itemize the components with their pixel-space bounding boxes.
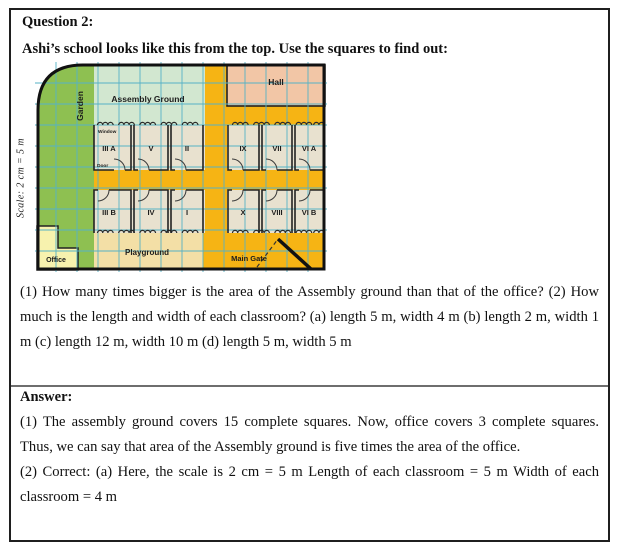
corridor-middle: [94, 170, 325, 190]
question-label: Question 2:: [22, 14, 93, 31]
question-body: (1) How many times bigger is the area of…: [20, 280, 599, 355]
classroom-label-VII: VII: [272, 144, 281, 153]
classroom-label-VIA: VI A: [302, 144, 317, 153]
classroom-label-IIIB: III B: [102, 208, 116, 217]
assembly-ground-label: Assembly Ground: [111, 94, 184, 104]
answer-label: Answer:: [20, 389, 72, 406]
office-label: Office: [46, 257, 66, 264]
classroom-label-IIIA: III A: [102, 144, 116, 153]
classroom-label-X: X: [240, 208, 245, 217]
answer-part1: (1) The assembly ground covers 15 comple…: [20, 410, 599, 460]
classroom-label-IX: IX: [239, 144, 246, 153]
classroom-label-II: II: [185, 144, 189, 153]
main-gate-label: Main Gate: [231, 254, 267, 263]
classroom-label-I: I: [186, 208, 188, 217]
document-page: Question 2: Ashi’s school looks like thi…: [0, 0, 619, 550]
hall-label: Hall: [268, 77, 284, 87]
window-annotation: Window: [98, 129, 117, 135]
door-annotation: Door: [97, 163, 108, 169]
answer-body: (1) The assembly ground covers 15 comple…: [20, 410, 599, 510]
scale-label: Scale: 2 cm = 5 m: [16, 138, 27, 218]
classroom-label-IV: IV: [147, 208, 154, 217]
answer-part2: (2) Correct: (a) Here, the scale is 2 cm…: [20, 460, 599, 510]
question-intro: Ashi’s school looks like this from the t…: [22, 41, 448, 58]
classroom-label-VIII: VIII: [271, 208, 282, 217]
garden-label: Garden: [75, 91, 85, 121]
school-map: Garden Assembly Ground Hall Window Door …: [35, 62, 327, 274]
section-divider: [11, 385, 608, 387]
playground-label: Playground: [125, 248, 169, 257]
classroom-label-VIB: VI B: [302, 208, 317, 217]
school-map-svg: Garden Assembly Ground Hall Window Door …: [35, 62, 327, 274]
classroom-label-V: V: [148, 144, 153, 153]
